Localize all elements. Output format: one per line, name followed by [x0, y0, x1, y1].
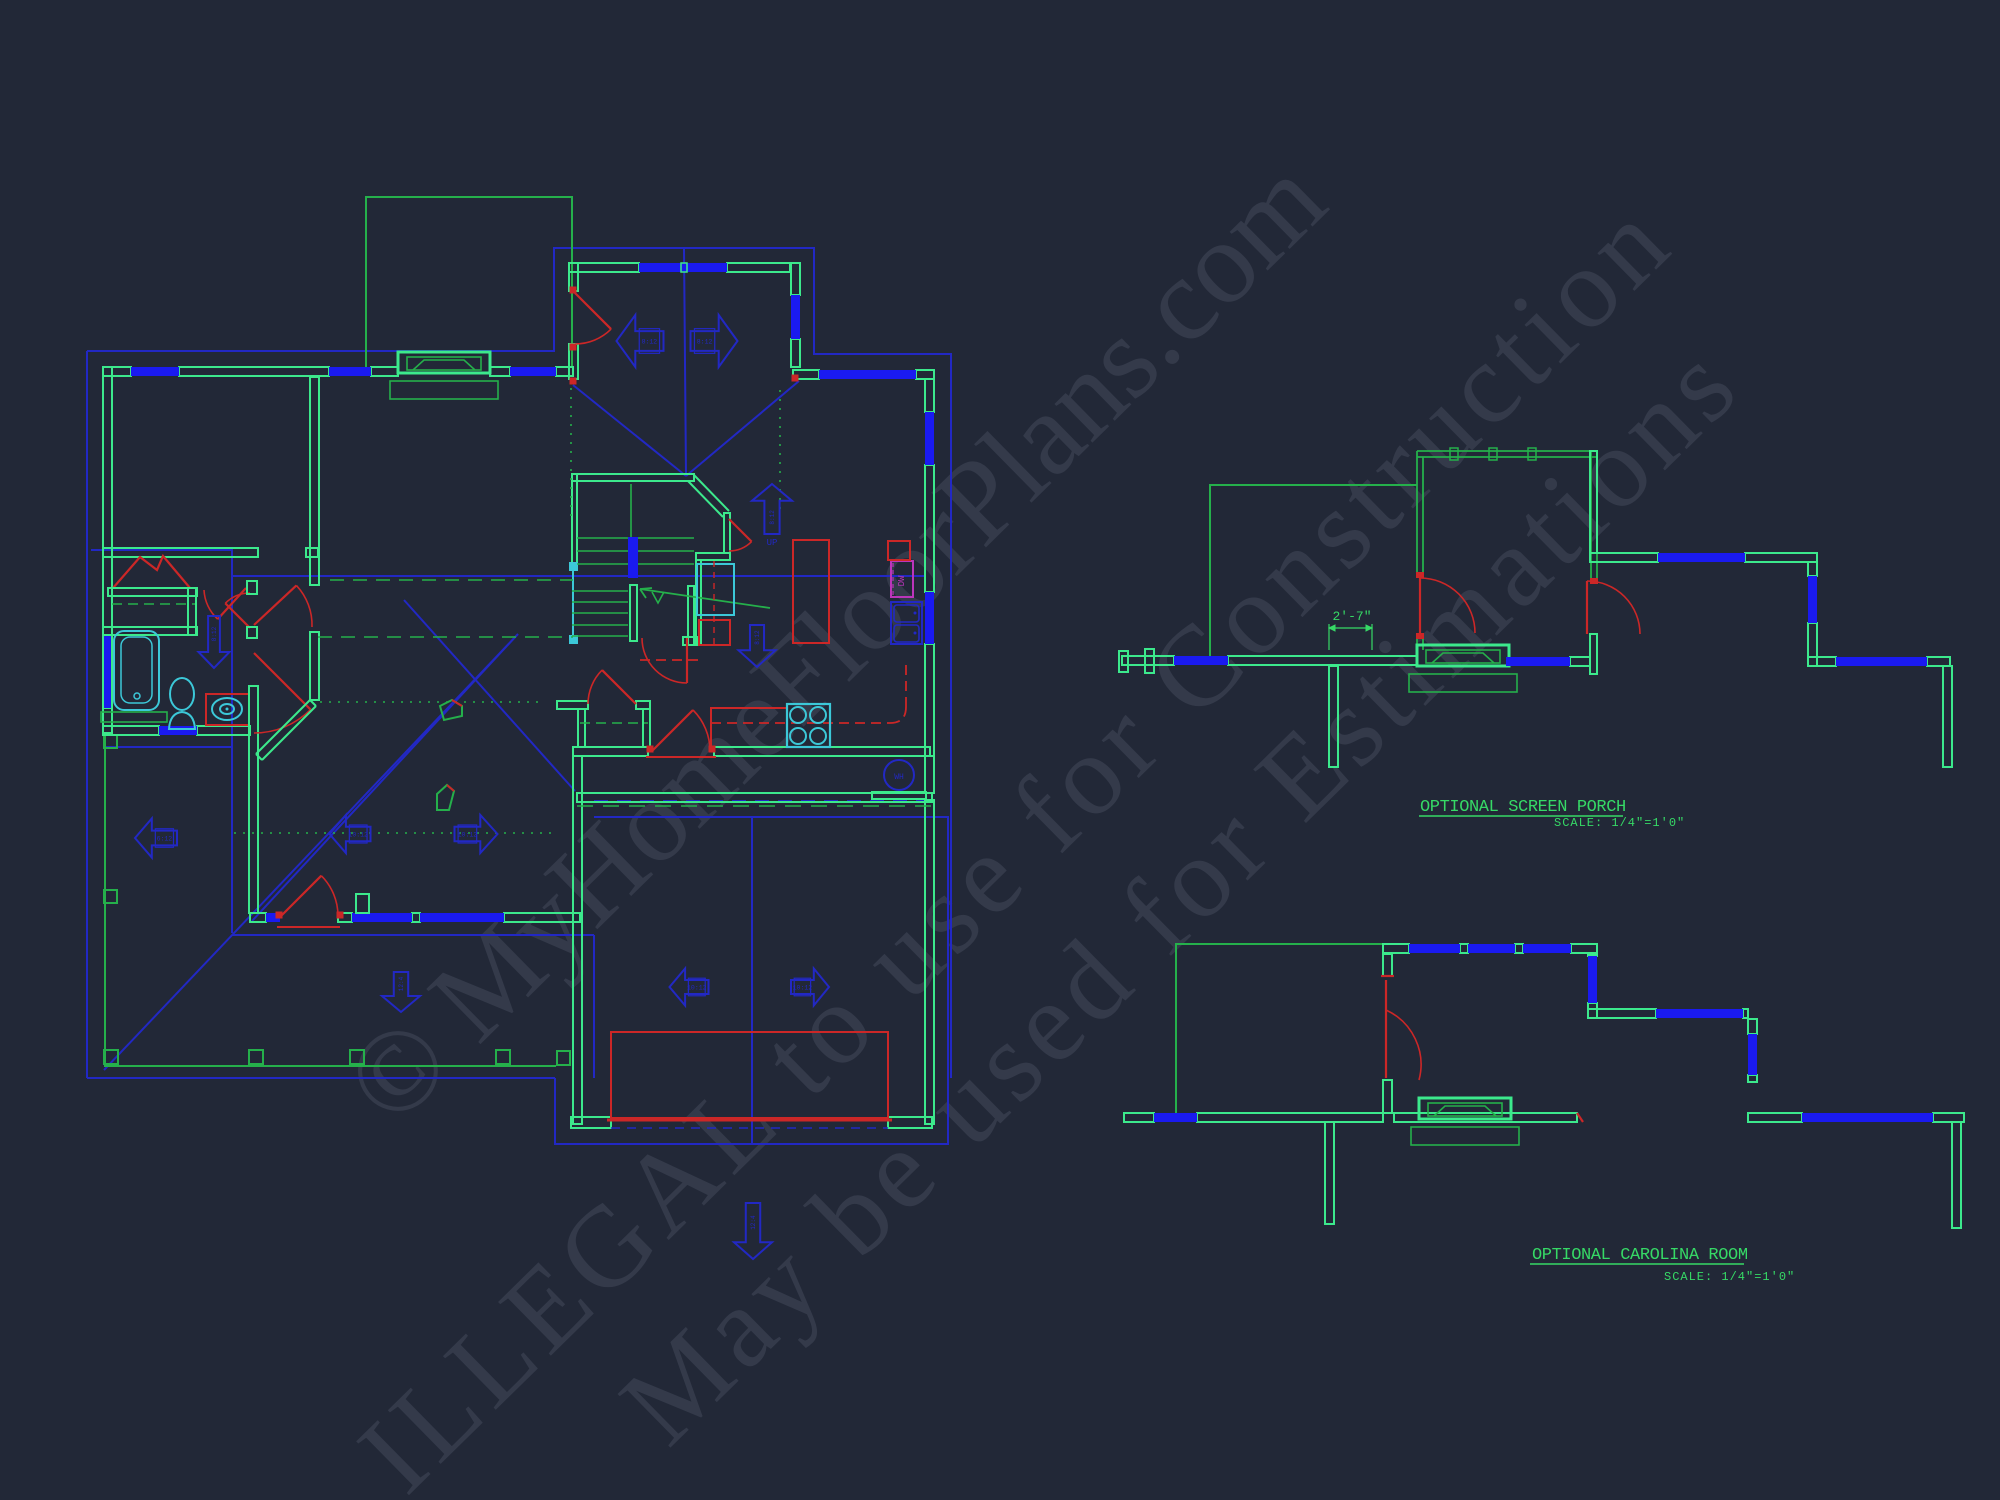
svg-text:12:4: 12:4: [398, 976, 405, 991]
svg-text:10:12: 10:12: [458, 832, 478, 839]
svg-text:2'-7": 2'-7": [1332, 609, 1371, 624]
svg-text:OPTIONAL SCREEN PORCH: OPTIONAL SCREEN PORCH: [1420, 798, 1626, 817]
svg-text:SCALE: 1/4"=1'0": SCALE: 1/4"=1'0": [1554, 816, 1685, 830]
svg-text:8:12: 8:12: [211, 626, 218, 641]
svg-text:WH: WH: [894, 773, 904, 782]
svg-text:DW: DW: [897, 575, 907, 586]
svg-text:8:12: 8:12: [642, 339, 658, 346]
svg-text:SCALE: 1/4"=1'0": SCALE: 1/4"=1'0": [1664, 1270, 1795, 1284]
svg-text:10:12: 10:12: [793, 985, 813, 992]
svg-text:8:12: 8:12: [769, 510, 776, 525]
svg-text:8:12: 8:12: [697, 339, 713, 346]
svg-text:10:12: 10:12: [348, 832, 368, 839]
svg-text:10:12: 10:12: [687, 985, 707, 992]
svg-text:8:12: 8:12: [754, 630, 761, 645]
svg-text:6:12: 6:12: [157, 836, 173, 843]
svg-text:OPTIONAL CAROLINA ROOM: OPTIONAL CAROLINA ROOM: [1532, 1246, 1748, 1265]
svg-text:12:4: 12:4: [750, 1215, 757, 1230]
svg-text:UP: UP: [767, 538, 778, 548]
